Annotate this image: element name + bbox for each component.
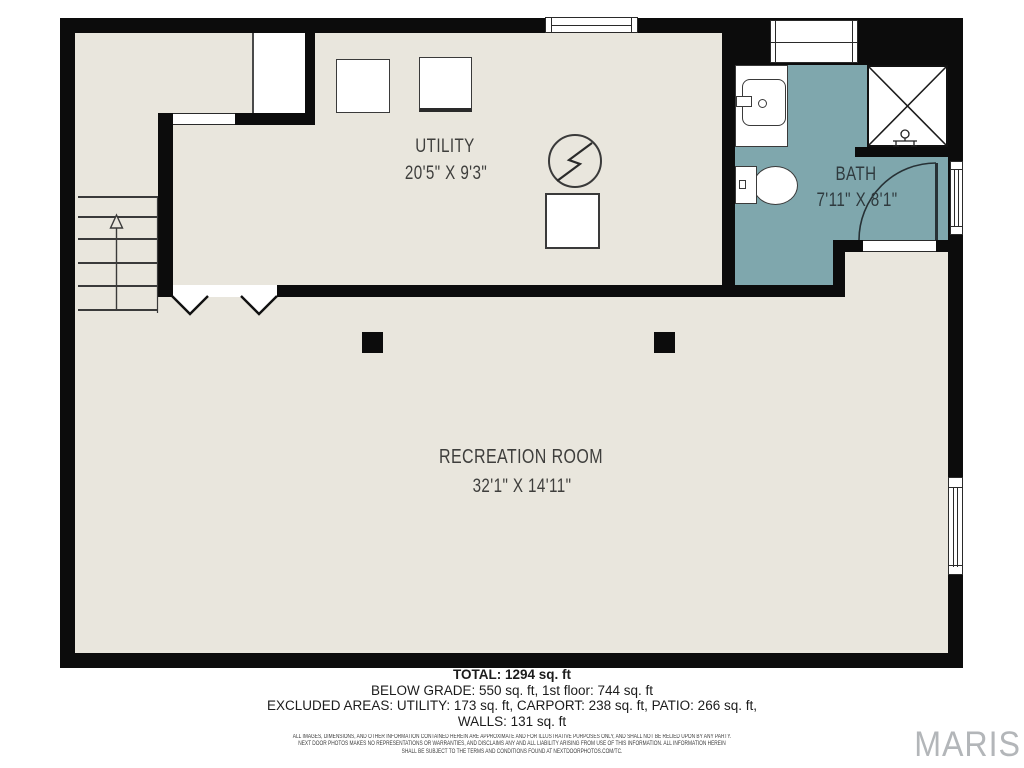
window-top: [545, 17, 638, 33]
top-door-unit: [770, 20, 858, 63]
floor-plan-page: UTILITY 20'5" X 9'3" BATH 7'11" X 8'1" R…: [0, 0, 1024, 768]
stair-tread: [78, 238, 158, 240]
stair-tread: [78, 216, 158, 218]
disclaimer-text: ALL IMAGES, DIMENSIONS, AND OTHER INFORM…: [102, 734, 921, 756]
sink-handle: [736, 96, 752, 107]
disclaimer-line: ALL IMAGES, DIMENSIONS, AND OTHER INFORM…: [102, 734, 921, 741]
summary-total: TOTAL: 1294 sq. ft: [0, 667, 1024, 683]
staircase: [78, 196, 158, 310]
summary-walls: WALLS: 131 sq. ft: [0, 714, 1024, 730]
utility-double-door-opening: [173, 285, 277, 297]
bath-room-dims: 7'11" X 8'1": [737, 190, 977, 212]
wall-stair-right: [158, 113, 173, 297]
utility-appliance-a: [336, 59, 390, 113]
disclaimer-line: SHALL BE SUBJECT TO THE TERMS AND CONDIT…: [102, 749, 921, 756]
disclaimer-line: NEXT DOOR PHOTOS MAKES NO REPRESENTATION…: [102, 741, 921, 748]
bath-door-opening: [863, 240, 936, 252]
summary-excluded: EXCLUDED AREAS: UTILITY: 173 sq. ft, CAR…: [0, 698, 1024, 714]
exterior-door-opening: [252, 33, 305, 113]
recreation-room-dims: 32'1" X 14'11": [402, 476, 642, 498]
bath-room-label: BATH: [736, 164, 976, 186]
wall-bath-step-horizontal: [833, 240, 863, 252]
support-post-left: [362, 332, 383, 353]
stair-tread: [78, 262, 158, 264]
bath-room-area-lower: [735, 240, 833, 285]
area-summary: TOTAL: 1294 sq. ft BELOW GRADE: 550 sq. …: [0, 667, 1024, 729]
wall-bottom: [60, 653, 963, 668]
wall-bath-door-segment: [936, 240, 948, 252]
wall-left: [60, 18, 75, 668]
utility-appliance-c: [545, 193, 600, 249]
recreation-room-label: RECREATION ROOM: [401, 446, 641, 469]
utility-room-dims: 20'5" X 9'3": [326, 163, 566, 185]
sink-drain: [758, 99, 767, 108]
wall-under-shower: [855, 147, 948, 157]
stair-tread: [78, 309, 158, 311]
summary-below-grade: BELOW GRADE: 550 sq. ft, 1st floor: 744 …: [0, 683, 1024, 699]
wall-bath-left: [722, 65, 735, 297]
stair-tread: [78, 196, 158, 198]
utility-appliance-b: [419, 57, 472, 112]
landing-door-opening: [173, 113, 235, 125]
stair-tread: [78, 285, 158, 287]
support-post-right: [654, 332, 675, 353]
utility-room-label: UTILITY: [325, 136, 565, 158]
window-right-lower: [948, 477, 963, 575]
maris-logo: MARIS: [914, 725, 1021, 765]
shower: [867, 65, 948, 147]
